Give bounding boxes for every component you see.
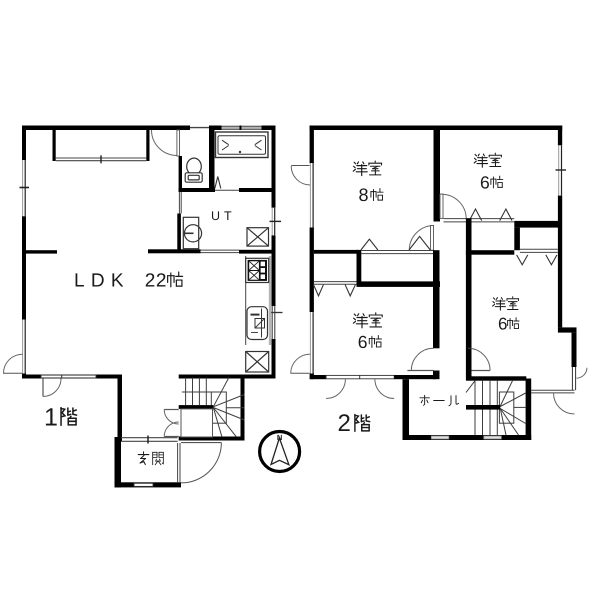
svg-text:2: 2 [338,410,351,437]
svg-text:LDK: LDK [74,271,130,292]
svg-text:8: 8 [359,185,369,205]
svg-text:1: 1 [44,404,58,432]
svg-text:N: N [277,433,282,442]
svg-text:6: 6 [358,332,368,352]
svg-text:UT: UT [211,209,236,223]
svg-text:6: 6 [480,173,490,193]
svg-text:22: 22 [145,271,167,292]
svg-text:6: 6 [498,314,507,333]
